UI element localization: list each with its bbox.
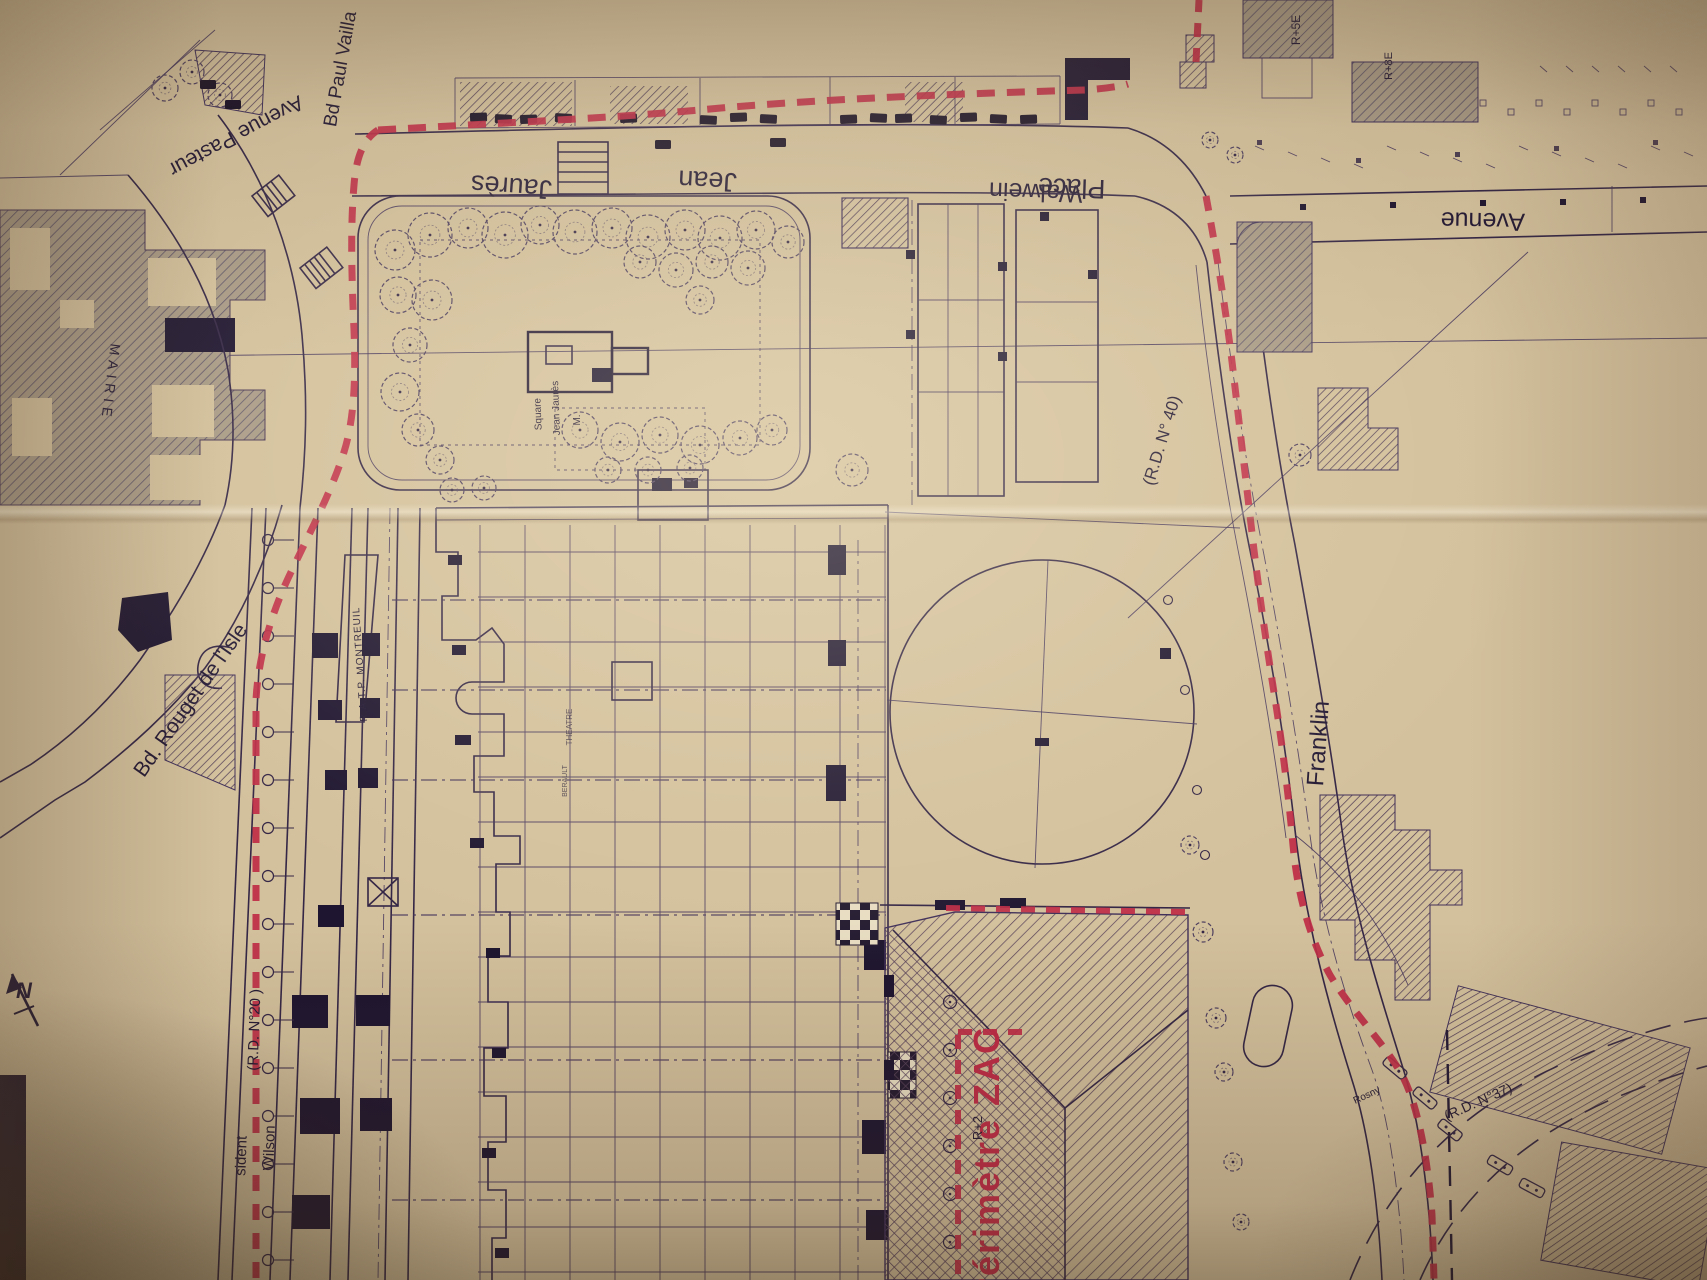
label-rd40: (R.D. N° 40) (1139, 393, 1184, 487)
market-grid-hall (392, 470, 916, 1280)
park-kiosk (528, 332, 648, 392)
street-labels: Avenue Pasteur Bd Paul Vailla Jaurès Jea… (16, 9, 1525, 1280)
bottom-right-area (1240, 795, 1707, 1280)
section-line (0, 338, 1707, 358)
label-rd20: (R.D. N°20 ) (245, 989, 265, 1071)
crosswalk-icon (558, 142, 608, 194)
crosswalk-icons (252, 175, 343, 288)
label-r2: R+2 (970, 1116, 985, 1140)
label-ratp: R.A.T.P. MONTREUIL (351, 606, 370, 722)
label-square: Square (532, 397, 544, 430)
label-jean: Jean (678, 164, 738, 197)
label-r5e: R+5E (1289, 15, 1303, 45)
roundabout-circle (887, 560, 1197, 868)
label-r8e: R+8E (1383, 52, 1395, 80)
label-m-marker: M. (572, 414, 583, 425)
label-jaures: Jaurès (470, 169, 553, 205)
bottom-left-area (0, 974, 38, 1280)
label-perimetre-zac: Périmètre ZAC (966, 1026, 1007, 1280)
label-north: N (16, 978, 33, 1003)
label-shop-1: THEATRE (565, 709, 574, 746)
label-square-2: Jean Jaurès (550, 381, 563, 436)
label-franklin: Franklin (1302, 700, 1335, 787)
plan-drawing: Avenue Pasteur Bd Paul Vailla Jaurès Jea… (0, 0, 1707, 1280)
label-walwein: Walwein (988, 176, 1082, 207)
label-bd-paul-vailla: Bd Paul Vailla (320, 9, 361, 128)
plan-photo: Avenue Pasteur Bd Paul Vailla Jaurès Jea… (0, 0, 1707, 1280)
label-rosny: Rosny (1352, 1085, 1382, 1107)
label-shop-2: BERAULT (562, 764, 569, 796)
walwein-block-buildings (842, 198, 1240, 528)
hall-entrance (638, 470, 708, 520)
zac-roof-building (880, 898, 1190, 1280)
label-president: sident (232, 1135, 250, 1176)
label-avenue: Avenue (1440, 206, 1525, 235)
label-wilson: Wilson (260, 1125, 279, 1171)
